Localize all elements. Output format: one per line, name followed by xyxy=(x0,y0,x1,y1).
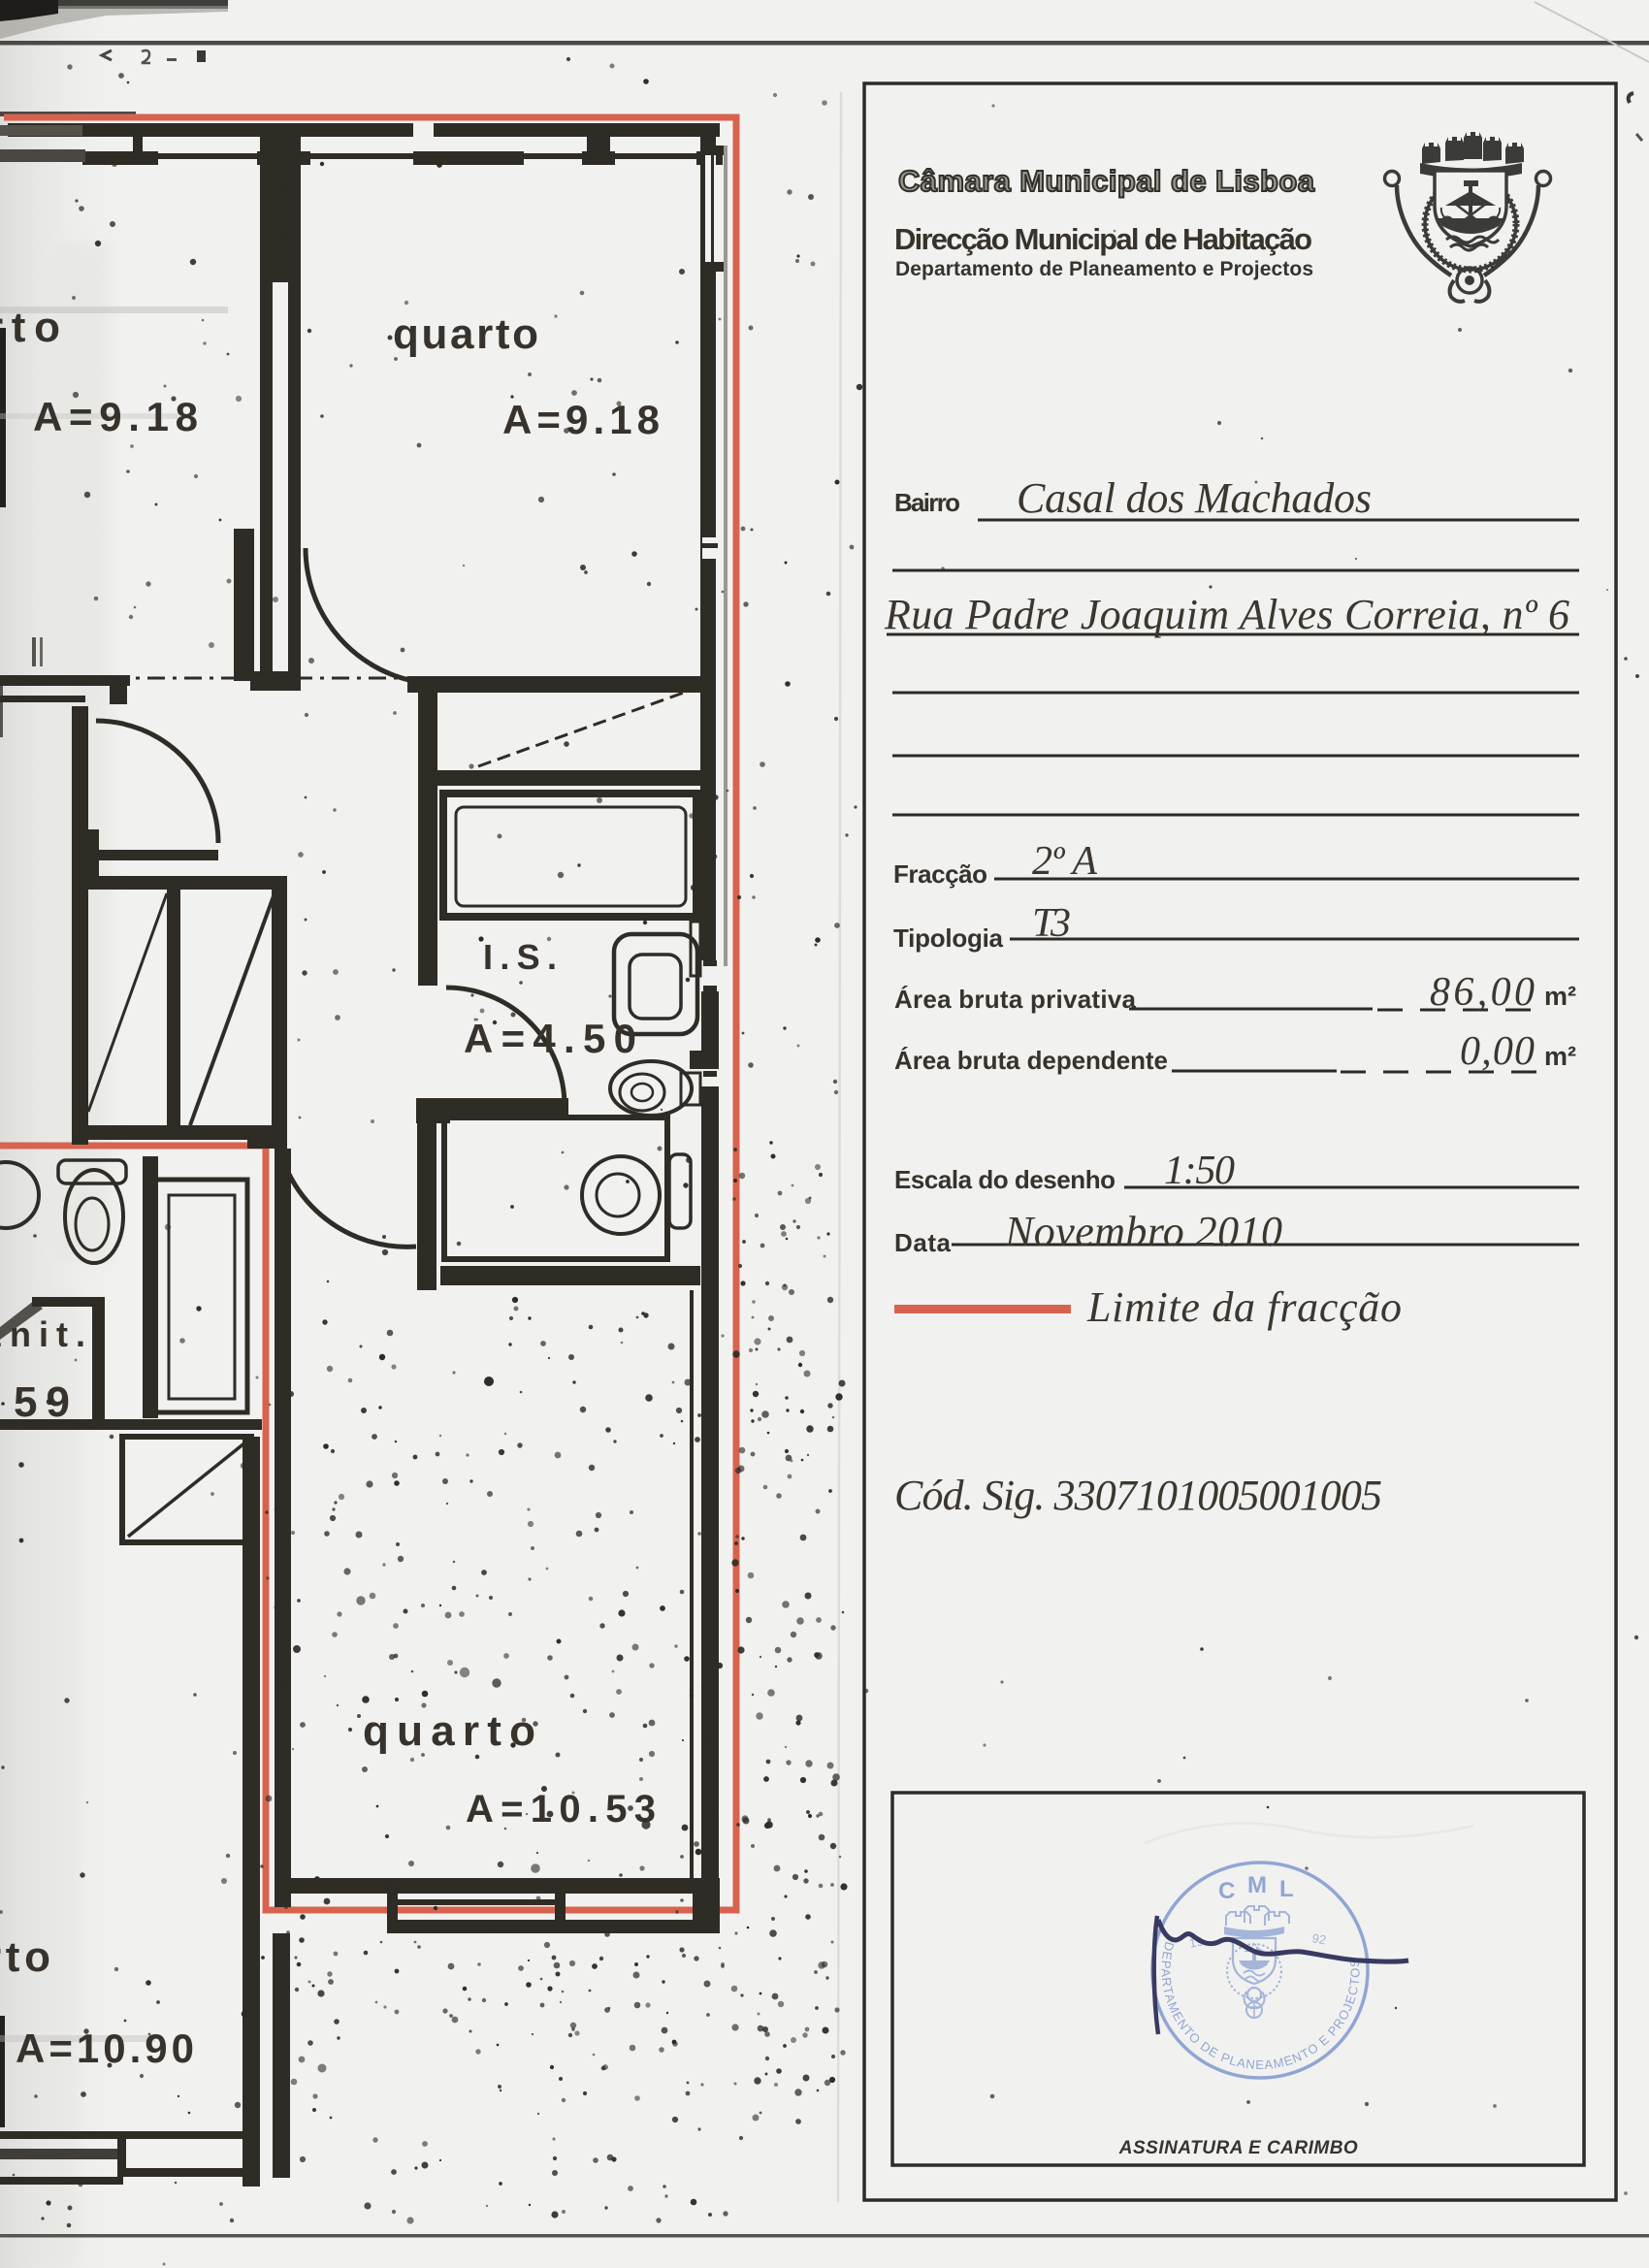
svg-text:86,00: 86,00 xyxy=(1430,970,1535,1015)
svg-text:m²: m² xyxy=(1544,982,1576,1011)
svg-text:rto: rto xyxy=(0,1933,50,1981)
svg-text:Área bruta privativa: Área bruta privativa xyxy=(894,985,1137,1014)
svg-text:Casal dos Machados: Casal dos Machados xyxy=(1017,474,1372,522)
svg-text:ASSINATURA E CARIMBO: ASSINATURA E CARIMBO xyxy=(1118,2138,1358,2158)
svg-text:Rua Padre Joaquim Alves Correi: Rua Padre Joaquim Alves Correia, nº 6 xyxy=(884,591,1569,638)
svg-text:Cód. Sig. 3307101005001005: Cód. Sig. 3307101005001005 xyxy=(894,1472,1382,1519)
svg-text:1:50: 1:50 xyxy=(1164,1149,1235,1193)
svg-text:m²: m² xyxy=(1544,1042,1576,1071)
svg-text:Limite da fracção: Limite da fracção xyxy=(1086,1283,1402,1331)
svg-text:Câmara Municipal de Lisboa: Câmara Municipal de Lisboa xyxy=(898,164,1315,198)
svg-text:quarto: quarto xyxy=(393,310,538,358)
svg-text:T3: T3 xyxy=(1032,901,1071,946)
svg-text:Área bruta dependente: Área bruta dependente xyxy=(894,1046,1168,1075)
svg-text:L: L xyxy=(1279,1876,1309,1902)
svg-text:Novembro 2010: Novembro 2010 xyxy=(1004,1208,1282,1255)
svg-text:0,00: 0,00 xyxy=(1460,1029,1535,1074)
svg-text:M: M xyxy=(1247,1872,1282,1898)
svg-text:C: C xyxy=(1218,1878,1250,1904)
svg-text:Bairro: Bairro xyxy=(894,488,960,517)
svg-text:A=9.18: A=9.18 xyxy=(502,397,660,442)
svg-text:Fracção: Fracção xyxy=(893,859,987,889)
svg-text:Escala do desenho: Escala do desenho xyxy=(894,1165,1115,1194)
svg-text:quarto: quarto xyxy=(363,1707,535,1755)
svg-text:92: 92 xyxy=(1310,1930,1327,1947)
svg-text:Data: Data xyxy=(894,1228,952,1257)
svg-text:Tipologia: Tipologia xyxy=(893,923,1004,953)
svg-text:Departamento de Planeamento e: Departamento de Planeamento e Projectos xyxy=(895,258,1313,280)
svg-text:Direcção Municipal de Habitaçã: Direcção Municipal de Habitação xyxy=(894,222,1312,256)
svg-text:2º A: 2º A xyxy=(1032,839,1097,884)
svg-text:A=10.90: A=10.90 xyxy=(16,2025,194,2071)
